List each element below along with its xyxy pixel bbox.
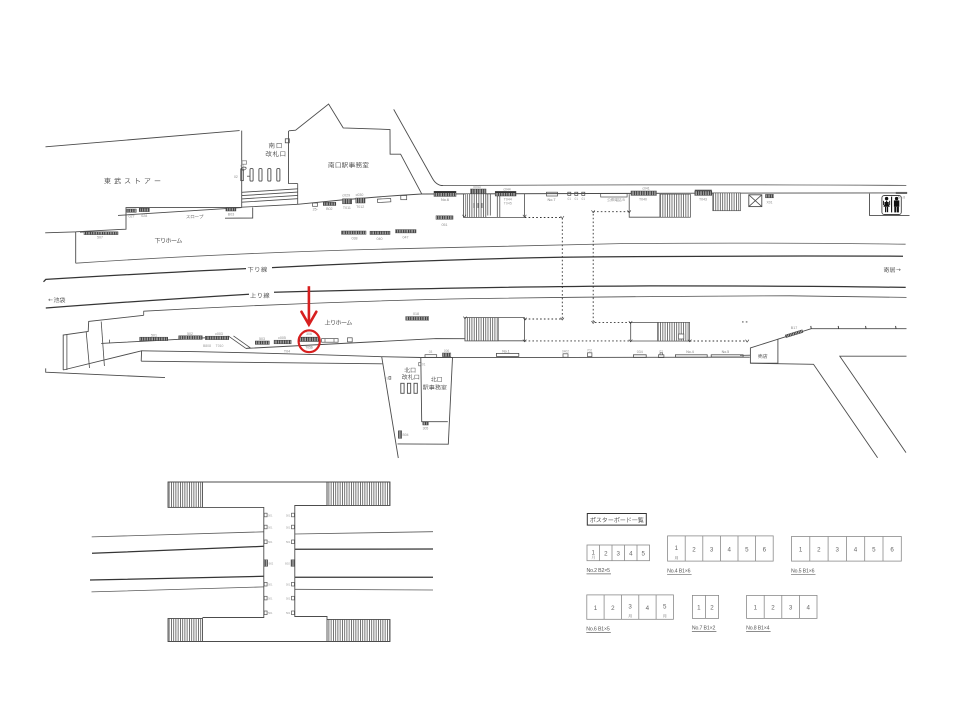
svg-text:5: 5 xyxy=(872,547,876,554)
svg-text:5: 5 xyxy=(663,604,667,611)
svg-text:501: 501 xyxy=(286,611,291,615)
svg-text:051: 051 xyxy=(442,223,448,227)
svg-text:1: 1 xyxy=(591,549,595,556)
svg-text:01: 01 xyxy=(582,197,586,201)
svg-text:6: 6 xyxy=(763,546,767,553)
svg-text:1: 1 xyxy=(594,605,598,612)
svg-text:T043: T043 xyxy=(699,197,707,201)
svg-text:1: 1 xyxy=(697,605,701,612)
svg-text:No.6 B1×5: No.6 B1×5 xyxy=(586,627,610,633)
svg-text:01: 01 xyxy=(575,197,579,201)
svg-text:306: 306 xyxy=(306,332,312,336)
svg-text:T012: T012 xyxy=(356,205,364,209)
svg-text:T045: T045 xyxy=(504,201,512,205)
svg-text:01: 01 xyxy=(568,197,572,201)
svg-text:c044: c044 xyxy=(503,187,510,191)
svg-text:03: 03 xyxy=(429,350,433,354)
svg-text:c005: c005 xyxy=(278,336,286,340)
svg-text:T011: T011 xyxy=(343,206,351,210)
svg-text:No.4: No.4 xyxy=(686,350,694,354)
svg-text:B02: B02 xyxy=(326,207,332,211)
svg-text:5: 5 xyxy=(745,546,749,553)
svg-text:034: 034 xyxy=(637,350,643,354)
svg-text:No.6: No.6 xyxy=(441,198,449,202)
svg-text:501: 501 xyxy=(268,596,273,600)
svg-text:02: 02 xyxy=(234,175,238,179)
svg-text:501: 501 xyxy=(286,583,291,587)
svg-text:No.2 B2×5: No.2 B2×5 xyxy=(587,568,611,574)
svg-text:028: 028 xyxy=(141,214,147,218)
svg-text:B808: B808 xyxy=(203,344,211,348)
svg-text:4: 4 xyxy=(629,551,633,558)
svg-text:006: 006 xyxy=(444,349,450,353)
svg-text:T04: T04 xyxy=(284,350,290,354)
svg-text:2: 2 xyxy=(771,605,775,612)
svg-text:T056: T056 xyxy=(305,346,313,350)
svg-text:2: 2 xyxy=(611,605,615,612)
svg-text:No.7 B1×2: No.7 B1×2 xyxy=(692,626,716,632)
svg-text:305: 305 xyxy=(423,427,429,431)
svg-text:X01: X01 xyxy=(766,201,772,205)
svg-text:027: 027 xyxy=(129,214,135,218)
svg-text:4: 4 xyxy=(806,605,810,612)
svg-text:6: 6 xyxy=(890,547,894,554)
svg-text:No.1: No.1 xyxy=(502,349,510,353)
svg-text:01: 01 xyxy=(384,376,388,380)
svg-text:5: 5 xyxy=(641,551,645,558)
svg-text:2: 2 xyxy=(710,605,714,612)
svg-text:047: 047 xyxy=(403,236,409,240)
svg-text:c003: c003 xyxy=(215,332,223,336)
svg-text:3: 3 xyxy=(835,547,839,554)
svg-text:3: 3 xyxy=(710,546,714,553)
svg-text:c043: c043 xyxy=(473,185,480,189)
svg-text:501: 501 xyxy=(268,540,273,544)
svg-text:1: 1 xyxy=(754,605,758,612)
svg-text:040: 040 xyxy=(377,237,383,241)
svg-text:501: 501 xyxy=(286,525,291,529)
svg-text:501: 501 xyxy=(151,333,157,337)
svg-text:503: 503 xyxy=(259,337,265,341)
svg-text:No.5 B1×6: No.5 B1×6 xyxy=(791,568,815,574)
svg-text:B03: B03 xyxy=(228,213,234,217)
svg-text:4: 4 xyxy=(854,547,858,554)
svg-text:0402: 0402 xyxy=(562,350,569,354)
svg-text:T010: T010 xyxy=(216,344,224,348)
svg-text:2: 2 xyxy=(817,547,821,554)
svg-text:1: 1 xyxy=(799,547,803,554)
svg-text:No.8: No.8 xyxy=(898,195,905,199)
svg-text:702: 702 xyxy=(587,348,593,352)
svg-text:3: 3 xyxy=(616,551,620,558)
svg-text:No.8 B1×4: No.8 B1×4 xyxy=(746,626,770,632)
svg-text:501: 501 xyxy=(268,611,273,615)
svg-text:01: 01 xyxy=(422,363,426,367)
svg-text:T040: T040 xyxy=(639,198,647,202)
svg-text:No.7: No.7 xyxy=(547,198,555,202)
svg-text:01: 01 xyxy=(660,349,664,353)
svg-text:4: 4 xyxy=(646,605,650,612)
svg-text:25-: 25- xyxy=(313,208,319,212)
svg-text:c041: c041 xyxy=(642,187,649,191)
svg-text:No.5: No.5 xyxy=(722,350,730,354)
svg-text:3: 3 xyxy=(628,604,632,611)
svg-text:1: 1 xyxy=(675,545,679,552)
svg-text:501: 501 xyxy=(286,513,291,517)
svg-text:B02: B02 xyxy=(269,562,274,566)
svg-text:B02: B02 xyxy=(285,562,290,566)
svg-text:B17: B17 xyxy=(791,326,797,330)
svg-text:No.4 B1×6: No.4 B1×6 xyxy=(667,568,691,574)
svg-text:4: 4 xyxy=(727,546,731,553)
svg-text:018: 018 xyxy=(413,312,419,316)
svg-text:c029: c029 xyxy=(342,193,350,197)
svg-text:501: 501 xyxy=(286,596,291,600)
svg-text:2: 2 xyxy=(604,551,608,558)
svg-text:c030: c030 xyxy=(356,193,364,197)
svg-text:3: 3 xyxy=(789,605,793,612)
svg-text:501: 501 xyxy=(268,513,273,517)
svg-text:501: 501 xyxy=(268,525,273,529)
svg-text:507: 507 xyxy=(97,235,103,239)
svg-text:B04: B04 xyxy=(403,433,409,437)
svg-text:501: 501 xyxy=(268,583,273,587)
svg-text:2: 2 xyxy=(692,546,696,553)
svg-text:501: 501 xyxy=(286,540,291,544)
svg-text:038: 038 xyxy=(352,237,358,241)
